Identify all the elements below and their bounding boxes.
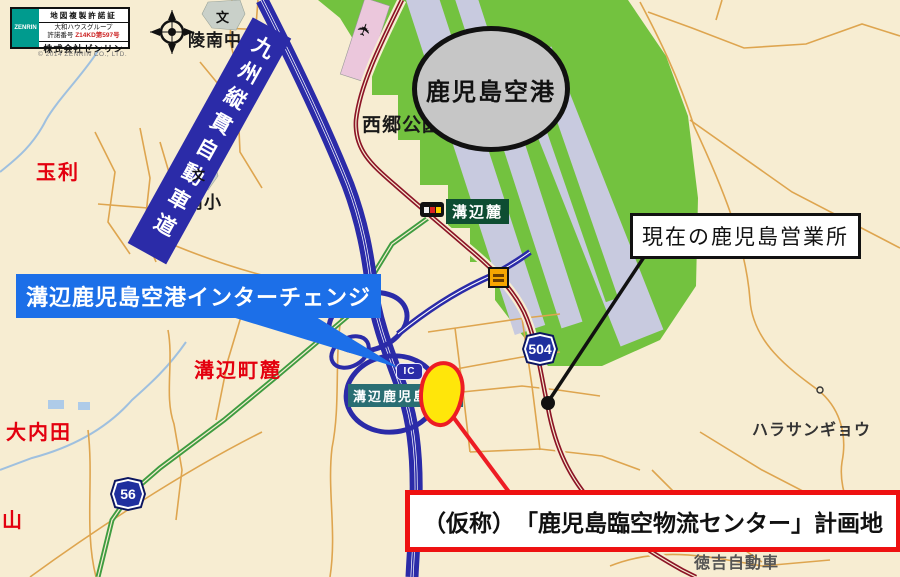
bus-stop-icon: [420, 202, 444, 217]
school-mark-elementary-icon: 文: [192, 165, 205, 184]
route-504-number: 504: [522, 332, 558, 366]
interchange-callout: 溝辺鹿児島空港インターチェンジ: [16, 274, 381, 318]
map-canvas: 西郷公園 ✈ 鹿児島空港 九州縦貫自動車道 文 文 陵南中 陵南小 玉利 溝辺町…: [0, 0, 900, 577]
mizobe-cho-fumoto-label: 溝辺町麓: [194, 354, 282, 383]
license-number-label: 許諾番号: [47, 32, 73, 39]
ouchida-label: 大内田: [6, 416, 72, 445]
license-number: Z14KD第597号: [75, 32, 119, 39]
license-title: 地図複製許諾証: [39, 9, 128, 23]
office-location-dot: [541, 396, 555, 410]
mizobe-fumoto-stop-label: 溝辺麓: [446, 199, 509, 224]
tamari-label: 玉利: [36, 156, 80, 185]
hara-sangyo-label: ハラサンギョウ: [752, 416, 871, 440]
airport-ellipse: 鹿児島空港: [412, 26, 570, 152]
compass-rose-icon: [148, 8, 196, 56]
school-mark-junior-high-icon: 文: [216, 7, 229, 26]
ic-badge: IC: [396, 363, 423, 380]
ryonan-junior-high-label: 陵南中: [188, 26, 242, 51]
copyright-text: © 2014 ZENRIN CO., LTD.: [38, 51, 127, 58]
route-56-shield: 56: [110, 477, 146, 511]
license-group: 大和ハウスグループ: [39, 24, 128, 32]
current-office-callout: 現在の鹿児島営業所: [630, 213, 861, 259]
tokuyoshi-jidosha-label: 徳吉自動車: [694, 549, 779, 573]
license-box: ZENRIN 地図複製許諾証 大和ハウスグループ 許諾番号 Z14KD第597号…: [10, 7, 130, 49]
route-56-number: 56: [110, 477, 146, 511]
yama-label: 山: [2, 504, 24, 533]
toll-gate-icon: [488, 267, 509, 288]
route-504-shield: 504: [522, 332, 558, 366]
zenrin-logo: ZENRIN: [12, 9, 39, 47]
planned-site-callout: （仮称） 「鹿児島臨空物流センター」計画地: [405, 490, 900, 552]
airport-label: 鹿児島空港: [426, 72, 556, 107]
